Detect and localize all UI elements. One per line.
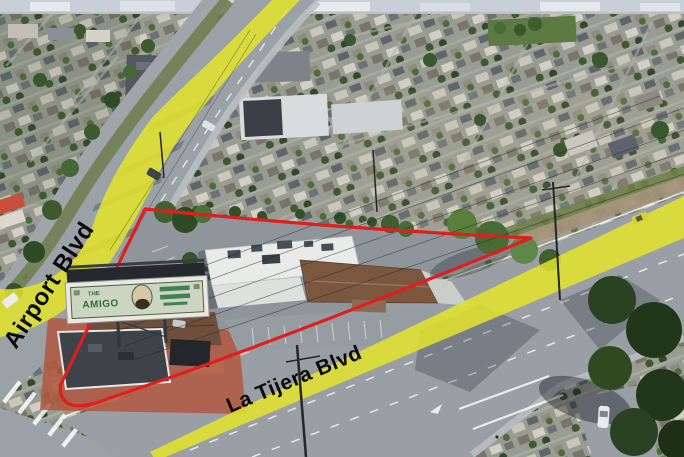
shade-structure [169, 339, 210, 367]
aerial-scene: THE AMIGO Airport Blvd La Tijera Blvd [0, 0, 684, 457]
billboard-line1: THE [88, 291, 100, 298]
pedestrian [495, 435, 498, 438]
aerial-property-photo: THE AMIGO Airport Blvd La Tijera Blvd [0, 0, 684, 457]
white-car-side-street [597, 406, 610, 429]
billboard-line2: AMIGO [82, 298, 119, 311]
horizon-strip [0, 0, 684, 14]
billboard-right-text-bars [160, 285, 191, 306]
dark-flat-roof [58, 329, 170, 389]
